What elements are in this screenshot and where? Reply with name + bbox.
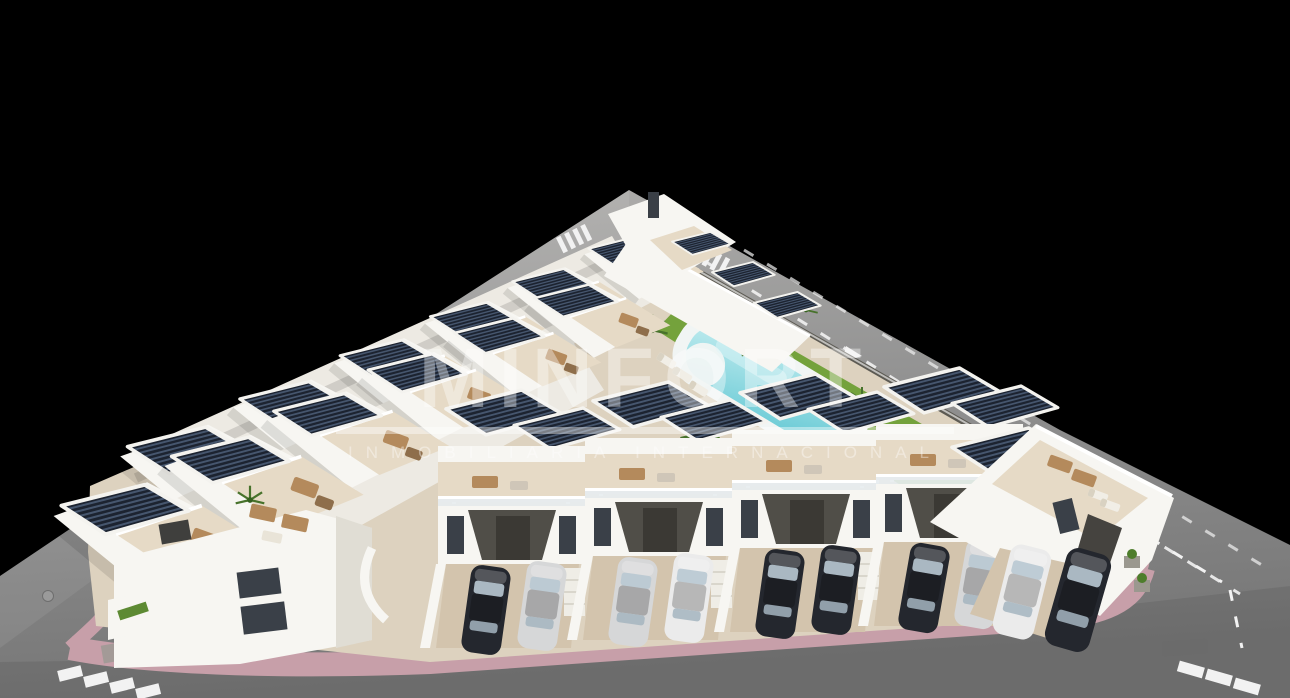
storm-drain xyxy=(1162,638,1209,656)
window xyxy=(237,568,282,599)
render-canvas: MINFORT INMOBILIARIA INTERNACIONAL xyxy=(0,0,1290,698)
window xyxy=(240,601,287,634)
plant xyxy=(1127,549,1137,559)
plant xyxy=(1137,573,1147,583)
manhole-cover xyxy=(43,591,54,602)
chimney xyxy=(648,192,659,218)
aerial-render xyxy=(0,0,1290,698)
